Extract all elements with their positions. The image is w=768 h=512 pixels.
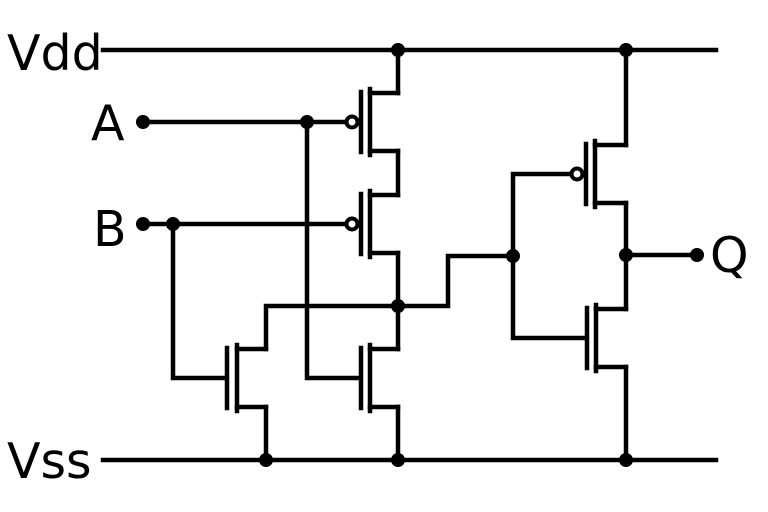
junction-dot-inverter-output-node bbox=[619, 248, 633, 262]
junction-dot-inverter-input-node bbox=[506, 249, 520, 263]
terminal-dot-input-a-terminal bbox=[136, 115, 150, 129]
wire-a-branch-to-nmos bbox=[307, 122, 359, 378]
junction-dot-a-wire-junction bbox=[300, 115, 314, 129]
terminal-dot-output-q-terminal bbox=[690, 248, 704, 262]
junction-dot-vss-junction-right bbox=[619, 453, 633, 467]
junction-dot-vss-junction-middle bbox=[391, 453, 405, 467]
output-q-label: Q bbox=[710, 227, 749, 284]
input-a-label: A bbox=[91, 95, 125, 152]
wire-inverter-gate-hookup bbox=[513, 174, 585, 338]
junction-dot-nor-output-node bbox=[391, 299, 405, 313]
junction-dot-vdd-junction-left bbox=[391, 43, 405, 57]
wire-node-to-inverter bbox=[398, 256, 513, 306]
cmos-or-gate-schematic: Vdd A B Vss Q bbox=[0, 0, 768, 512]
pmos-inverter-bubble bbox=[572, 169, 583, 180]
schematic-drawing bbox=[103, 43, 716, 467]
junction-dot-b-wire-junction bbox=[166, 217, 180, 231]
wire-node-to-nmos-b bbox=[266, 306, 398, 349]
terminal-dot-input-b-terminal bbox=[136, 217, 150, 231]
wire-b-branch-to-nmos bbox=[173, 224, 225, 378]
input-b-label: B bbox=[93, 201, 127, 258]
junction-dot-vss-junction-left bbox=[259, 453, 273, 467]
pmos-input-a-bubble bbox=[347, 117, 358, 128]
junction-dot-vdd-junction-right bbox=[619, 43, 633, 57]
pmos-input-b-bubble bbox=[347, 219, 358, 230]
vdd-rail-label: Vdd bbox=[7, 25, 103, 82]
vss-rail-label: Vss bbox=[7, 433, 92, 490]
schematic-svg: Vdd A B Vss Q bbox=[0, 0, 768, 512]
